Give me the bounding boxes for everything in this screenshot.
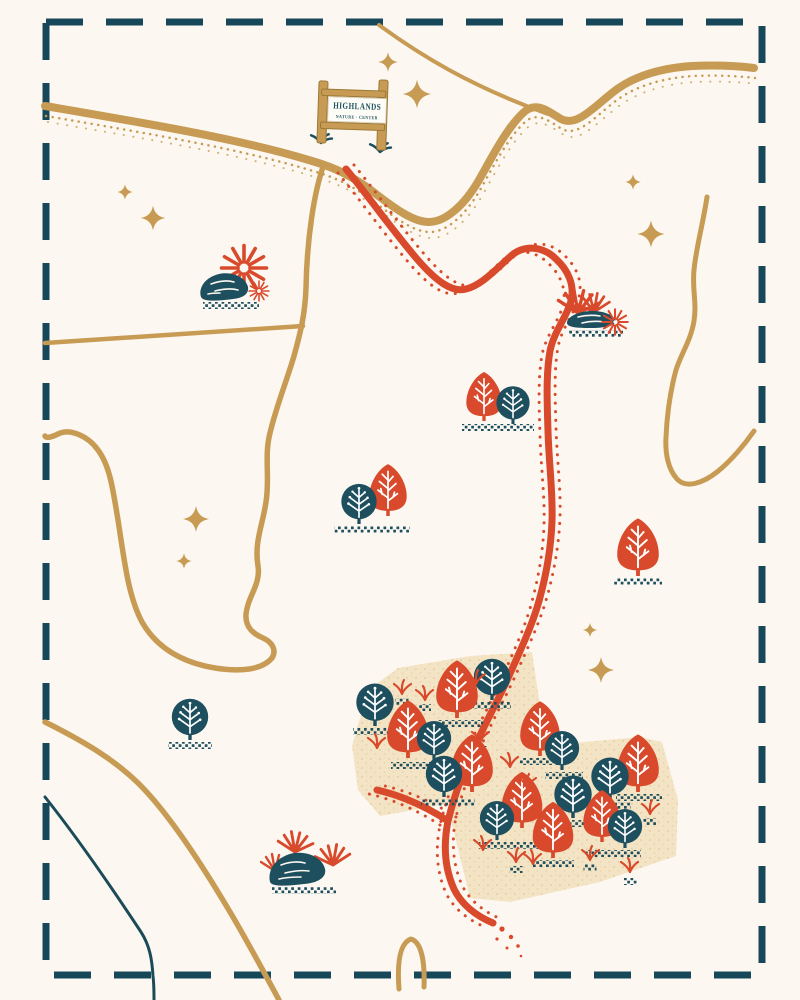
ground-dots	[203, 302, 259, 309]
ground-dots	[272, 887, 336, 894]
ground-dots	[419, 704, 431, 711]
ground-dots	[168, 742, 212, 749]
ground-dots	[614, 578, 662, 585]
ground-dots	[616, 794, 662, 801]
ground-dots	[510, 866, 523, 873]
ground-dots	[584, 864, 597, 871]
ground-dots	[334, 526, 410, 533]
ground-dots	[421, 799, 475, 806]
ground-dots	[462, 424, 534, 431]
sign-title-text: HIGHLANDS	[333, 100, 381, 112]
ground-dots	[532, 860, 574, 867]
nature-center-trail-map: HIGHLANDS NATURE · CENTER	[0, 0, 800, 1000]
ground-dots	[473, 702, 511, 709]
ground-dots	[624, 878, 637, 885]
ground-dots	[644, 818, 657, 825]
map-canvas: HIGHLANDS NATURE · CENTER	[0, 0, 800, 1000]
